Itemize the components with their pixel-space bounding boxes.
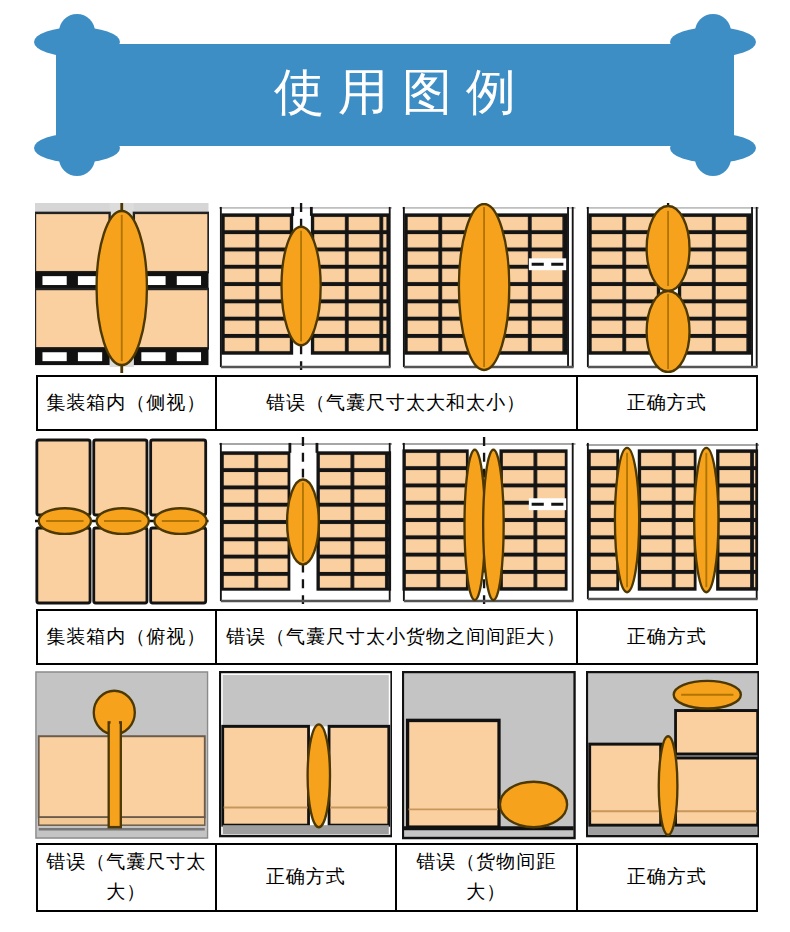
caption-cell: 错误（气囊尺寸太大和太小） xyxy=(217,375,578,431)
caption-cell: 正确方式 xyxy=(578,609,759,665)
illustration-table: 集装箱内（侧视） 错误（气囊尺寸太大和太小） 正确方式 xyxy=(30,203,764,912)
illustration-wrong-bag-large xyxy=(397,203,581,373)
illustration-correct-bags-between-stacks xyxy=(581,437,765,607)
caption-cell: 正确方式 xyxy=(578,375,759,431)
illustration-wrong-cargo-gap-large xyxy=(397,671,581,841)
row-3-images xyxy=(30,671,764,841)
caption-cell: 正确方式 xyxy=(578,843,759,912)
page: 使用图例 xyxy=(0,0,790,932)
illustration-correct-two-bags xyxy=(581,203,765,373)
page-title: 使用图例 xyxy=(0,8,790,183)
caption-cell: 正确方式 xyxy=(217,843,398,912)
title-banner: 使用图例 xyxy=(0,8,790,183)
row-1-images xyxy=(30,203,764,373)
illustration-wrong-two-thin-bags xyxy=(397,437,581,607)
caption-cell: 集装箱内（俯视） xyxy=(36,609,217,665)
illustration-container-top-view xyxy=(30,437,214,607)
illustration-wrong-bag-too-small-wide-gap xyxy=(214,437,398,607)
illustration-correct-uneven-stacks xyxy=(581,671,765,841)
illustration-correct-bag-fits xyxy=(214,671,398,841)
caption-cell: 错误（货物间距大） xyxy=(397,843,578,912)
illustration-wrong-bag-small xyxy=(214,203,398,373)
row-1-captions: 集装箱内（侧视） 错误（气囊尺寸太大和太小） 正确方式 xyxy=(36,375,758,431)
caption-cell: 错误（气囊尺寸太大） xyxy=(36,843,217,912)
row-2-captions: 集装箱内（俯视） 错误（气囊尺寸太小货物之间间距大） 正确方式 xyxy=(36,609,758,665)
caption-cell: 错误（气囊尺寸太小货物之间间距大） xyxy=(217,609,578,665)
illustration-container-side-view xyxy=(30,203,214,373)
row-3-captions: 错误（气囊尺寸太大） 正确方式 错误（货物间距大） 正确方式 xyxy=(36,843,758,912)
row-2-images xyxy=(30,437,764,607)
illustration-wrong-bag-oversized xyxy=(30,671,214,841)
caption-cell: 集装箱内（侧视） xyxy=(36,375,217,431)
